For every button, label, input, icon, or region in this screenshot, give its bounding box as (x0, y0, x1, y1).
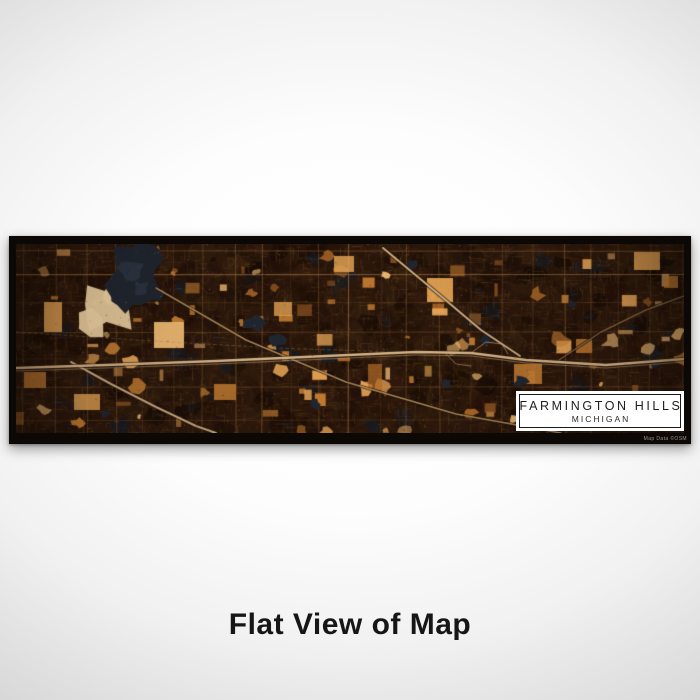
caption: Flat View of Map (0, 608, 700, 642)
map-attribution: Map Data ©OSM (644, 437, 687, 442)
map-title-box: FARMINGTON HILLS MICHIGAN (516, 391, 684, 431)
state-name: MICHIGAN (572, 414, 631, 424)
map-title-box-border: FARMINGTON HILLS MICHIGAN (519, 394, 681, 428)
map-print: FARMINGTON HILLS MICHIGAN Map Data ©OSM (9, 236, 691, 444)
city-name: FARMINGTON HILLS (520, 399, 683, 413)
